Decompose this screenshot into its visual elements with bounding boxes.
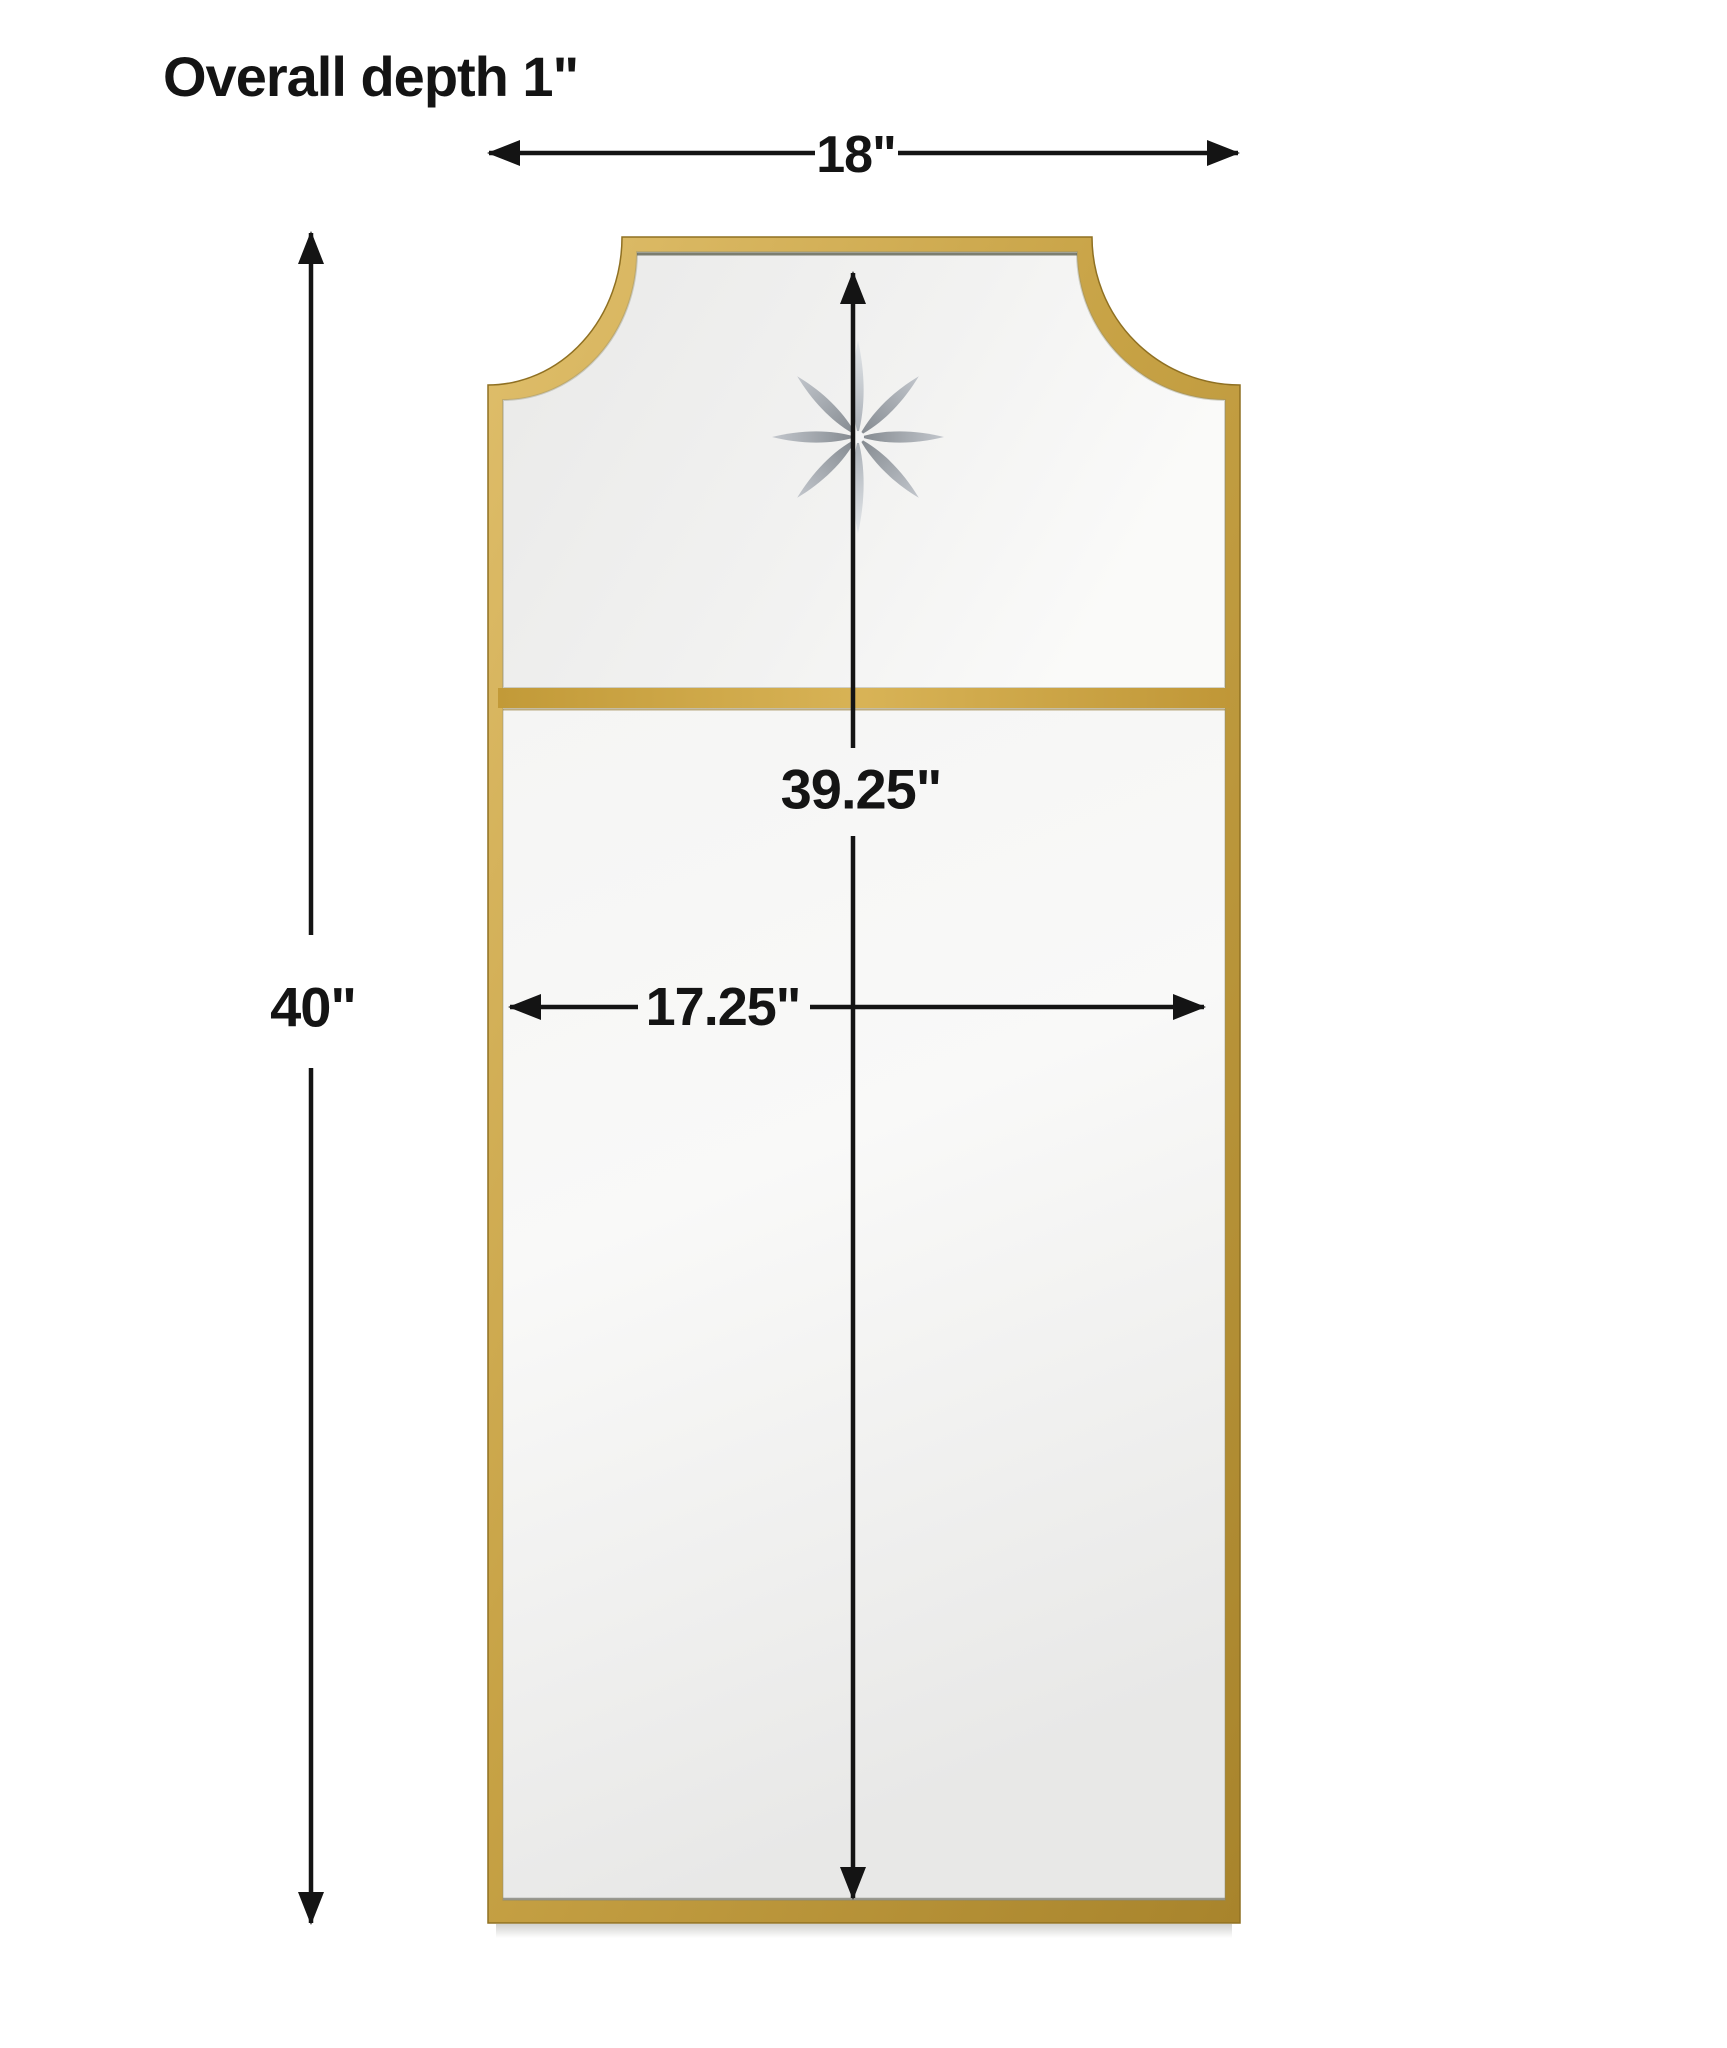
dimension-label-overall-height: 40": [270, 975, 356, 1040]
dimension-label-inner-width: 17.25": [646, 976, 801, 1038]
dimension-label-overall-width: 18": [816, 125, 896, 185]
mirror-divider-rail: [498, 688, 1230, 708]
mirror-shadow: [496, 1924, 1232, 1938]
dimension-label-inner-height: 39.25": [781, 757, 942, 822]
page-title: Overall depth 1": [163, 44, 578, 109]
mirror-glass-lower: [503, 708, 1225, 1900]
mirror-dimension-diagram: Overall depth 1" 18" 40" 39.25" 17.25": [0, 0, 1727, 2048]
mirror-drawing: [0, 0, 1727, 2048]
